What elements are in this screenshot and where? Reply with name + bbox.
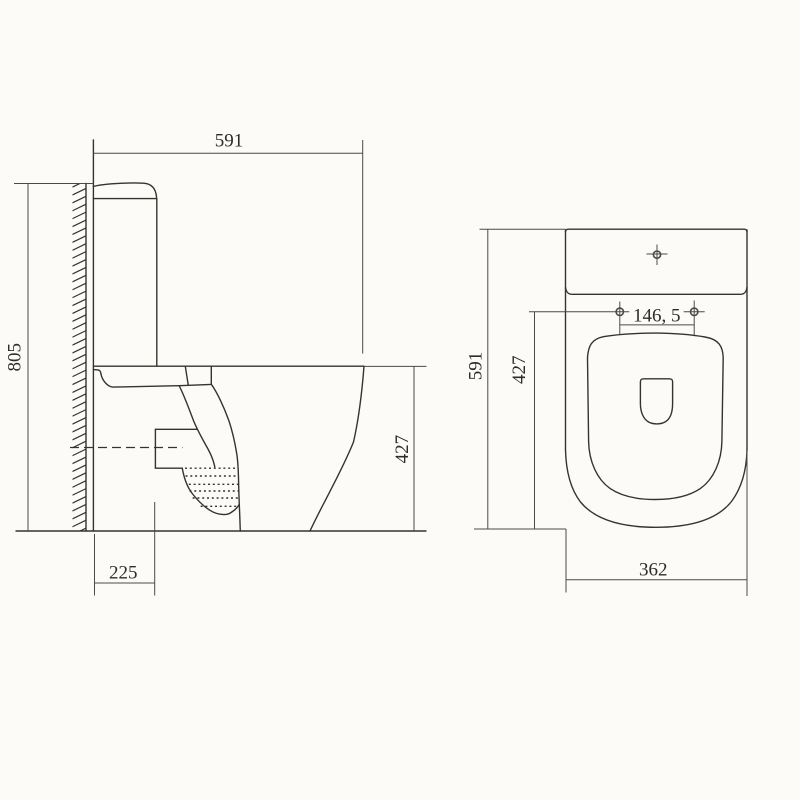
svg-text:427: 427 [392,435,413,464]
svg-text:225: 225 [109,563,138,584]
svg-text:591: 591 [215,130,244,151]
svg-text:805: 805 [5,343,26,372]
svg-text:146, 5: 146, 5 [633,306,681,327]
svg-text:591: 591 [466,352,487,381]
svg-text:362: 362 [639,560,668,581]
svg-text:427: 427 [509,356,530,385]
